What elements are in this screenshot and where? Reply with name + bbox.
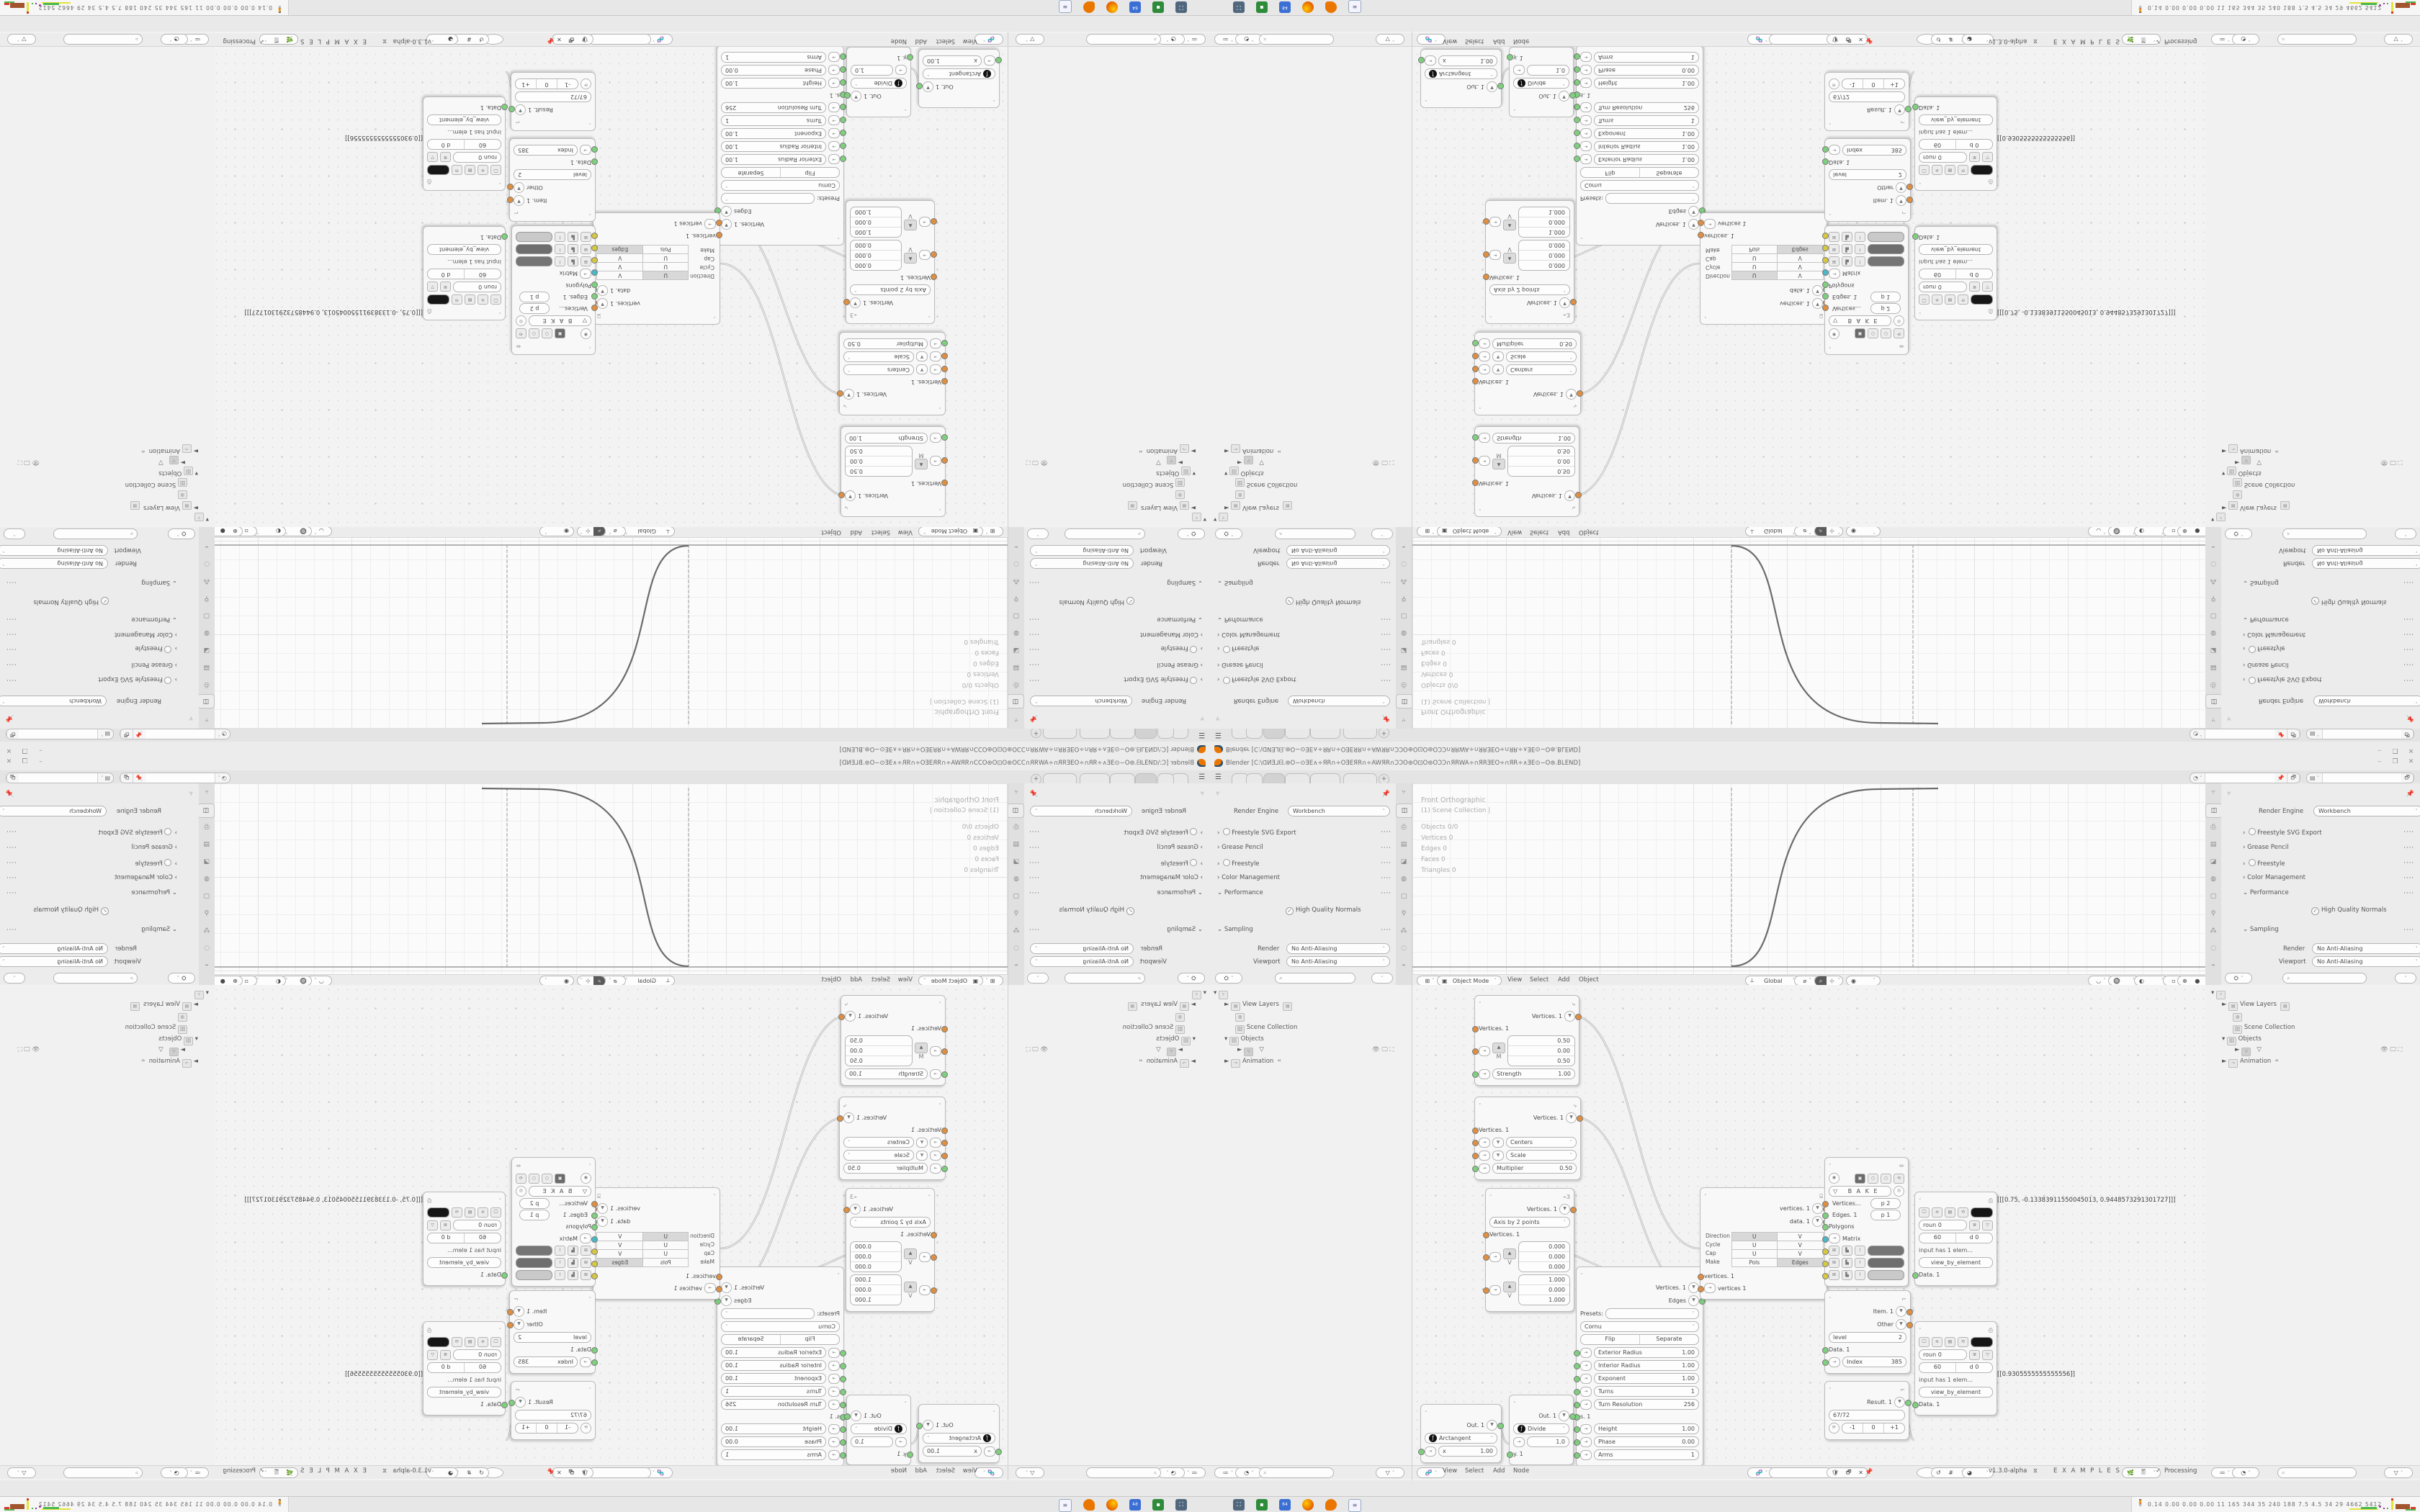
socket-options-icon[interactable]: ▼ (514, 182, 524, 193)
node-row-f3[interactable]: roun 0≣▽ (427, 282, 501, 292)
socket-g[interactable] (840, 1350, 846, 1356)
socket-o[interactable] (1483, 251, 1489, 258)
show-toggle-icon[interactable]: ◉ (581, 328, 591, 339)
collapse-icon[interactable]: ˅ (1479, 1103, 1482, 1109)
properties-tab-icon-4[interactable]: ◪ (1008, 855, 1024, 868)
node-field[interactable]: Arms1 (721, 52, 826, 63)
node-row-field[interactable]: level2 (514, 1332, 591, 1343)
node-row-btn[interactable]: view_by_element (1919, 114, 1993, 125)
node-row-btn[interactable]: view_by_element (1919, 1387, 1993, 1398)
menu-object[interactable]: Object (821, 976, 841, 984)
node-arctangent[interactable]: ˅Out. 1▼ƒArctangent˅⇥x1.00 (1420, 49, 1502, 108)
properties-tab-icon-6[interactable]: ▢ (1396, 890, 1412, 903)
node-field[interactable]: Turn Resolution256 (721, 102, 826, 113)
node-row-btn[interactable]: view_by_element (1919, 1257, 1993, 1268)
outliner-filter-type-dropdown[interactable]: ◔˅ (161, 34, 188, 45)
pin-icon[interactable]: 📌 (547, 1469, 555, 1476)
table-toggle-v[interactable]: V (1777, 254, 1824, 264)
socket-g[interactable] (995, 57, 1002, 63)
node-row-field[interactable]: ⇥x1.00 (1425, 1446, 1497, 1457)
socket-options-icon[interactable]: ▼ (843, 1112, 854, 1123)
socket-g[interactable] (840, 1439, 846, 1446)
panel-grease-pencil[interactable]: › Grease Pencil (1217, 661, 1263, 668)
view-layer-name-field[interactable] (2323, 729, 2401, 739)
node-row-dd[interactable]: ⇥▼Centers˅ (1479, 1137, 1577, 1148)
socket-g[interactable] (1574, 130, 1580, 136)
properties-filter-dropdown[interactable]: ⛭˅ (168, 528, 195, 539)
high-quality-normals-checkbox[interactable]: ✓High Quality Normals (34, 906, 109, 915)
copy-icon[interactable]: 🗗 (6, 729, 19, 739)
node-row-swatch[interactable]: ⊞▙⌇ (1829, 1246, 1904, 1256)
node-field[interactable]: Phase0.00 (1594, 1436, 1699, 1447)
node-field[interactable]: Interior Radius1.00 (1594, 1360, 1699, 1371)
taskbar-blender-icon[interactable] (1083, 1499, 1095, 1511)
table-toggle-edges[interactable]: Edges (1777, 1258, 1824, 1267)
properties-tab-icon-9[interactable]: ◌ (199, 942, 215, 955)
collapse-icon[interactable]: ˅ (1829, 1297, 1832, 1302)
swatch-option-icon[interactable]: ▙ (568, 1246, 578, 1256)
node-field[interactable]: x1.00 (1438, 1446, 1497, 1457)
outliner-scene-collection[interactable]: 🗄 Scene Collection (1235, 1024, 1297, 1034)
outliner-objects[interactable]: ▾ 🗄 Objects (1224, 1035, 1264, 1045)
node-row-field[interactable]: ⇥Exterior Radius1.00 (1580, 154, 1699, 165)
node-axis-by-2-points[interactable]: ˅⌁3Vertices. 1▼Axis by 2 points˅Vertices… (1485, 1188, 1574, 1312)
socket-o[interactable] (941, 480, 948, 486)
socket-o[interactable] (1575, 1014, 1582, 1020)
outliner-animation[interactable]: ► ⤳ Animation ⁴² (1224, 444, 1281, 454)
node-row-field[interactable]: ⇥Phase0.00 (1580, 1436, 1699, 1447)
outliner-view-layers[interactable]: ► ▤ View Layers ▤ (2222, 1001, 2290, 1011)
socket-g[interactable] (1507, 54, 1513, 60)
socket-options-icon[interactable]: ▼ (1688, 206, 1699, 217)
high-quality-normals-checkbox[interactable]: ✓High Quality Normals (34, 597, 109, 606)
node-editor[interactable]: [[[0.75, -0.13383911550045013, 0.9448573… (213, 985, 1008, 1480)
socket-y[interactable] (1822, 258, 1829, 264)
node-row-sicons[interactable]: 🖵≋▤⟲ (427, 1207, 501, 1218)
properties-tab-icon-10[interactable]: ⌁ (1396, 540, 1412, 553)
node-axis-by-2-points[interactable]: ˅⌁3Vertices. 1▼Axis by 2 points˅Vertices… (846, 200, 935, 324)
panel-grease-pencil[interactable]: › Grease Pencil (1157, 661, 1203, 668)
scene-browse-icon[interactable]: ◔˅ (2190, 729, 2205, 739)
outliner-world-icon[interactable]: ◍ (2233, 1012, 2242, 1022)
node-field[interactable]: 1.0 (1527, 1436, 1569, 1447)
stethoscope-option-icon[interactable]: ▤ (465, 1207, 475, 1218)
node-row-dd[interactable]: ƒDivide˅ (851, 1423, 907, 1434)
taskbar-floppy-64-icon[interactable]: 64 (1279, 1499, 1291, 1511)
node-dropdown[interactable]: ƒArctangent˅ (923, 1433, 995, 1444)
node-stethoscope-2[interactable]: ˅⎙🖵≋▤⟲roun 0≣▽60d 0input has 1 elem...vi… (423, 96, 506, 191)
properties-tab-icon-10[interactable]: ⌁ (1008, 959, 1024, 972)
node-field[interactable]: Phase0.00 (721, 65, 826, 76)
swatch-option-icon[interactable]: ⌇ (1855, 1246, 1865, 1256)
socket-options-icon[interactable]: ▼ (1812, 285, 1823, 296)
socket-o[interactable] (837, 390, 843, 397)
render-engine-dropdown[interactable]: Workbench˅ (0, 806, 107, 816)
socket-g[interactable] (1418, 1449, 1425, 1455)
outliner-scene-collection[interactable]: 🗄 Scene Collection (1123, 1024, 1185, 1034)
swatch-option-icon[interactable]: ▙ (1842, 232, 1852, 242)
outliner-restriction-icons[interactable]: 👁 🖵 ⛶ (2380, 459, 2402, 466)
socket-o[interactable] (941, 1048, 948, 1055)
socket-options-icon[interactable]: ▼ (1566, 389, 1577, 400)
socket-g[interactable] (995, 1449, 1002, 1455)
properties-tab-icon-2[interactable]: ⎙ (199, 821, 215, 834)
node-row-dd[interactable]: ⇥▼Scale˅ (843, 1150, 941, 1161)
tree-icons-group[interactable]: 🌿🖺˅ (2122, 34, 2161, 45)
collapse-icon[interactable]: ˅ (1479, 404, 1482, 410)
node-row-vec[interactable]: ⇥▲M0.500.000.50 (845, 1035, 941, 1066)
sampling-viewport-dropdown[interactable]: No Anti-Aliasing˅ (1030, 545, 1134, 556)
panel-freestyle[interactable]: › Freestyle (2243, 859, 2285, 868)
copy-icon[interactable]: 🗗 (2287, 729, 2300, 739)
scene-name-field[interactable] (2205, 729, 2274, 739)
node-row-field[interactable]: Edges. 1p 1 (1829, 1210, 1904, 1220)
properties-tab-icon-4[interactable]: ◪ (1396, 644, 1412, 657)
properties-tab-icon-9[interactable]: ◌ (199, 557, 215, 570)
collapse-icon[interactable]: ˅ (1489, 312, 1492, 318)
swatch-option-icon[interactable]: ⊞ (581, 256, 591, 266)
socket-g[interactable] (591, 1212, 598, 1219)
node-row-table[interactable]: DirectionUVCycleUVCapUVMakePolsEdges (1704, 1229, 1823, 1269)
sampling-render-dropdown[interactable]: No Anti-Aliasing˅ (1286, 943, 1390, 954)
socket-y[interactable] (1822, 1261, 1829, 1267)
socket-options-icon[interactable]: ▼ (721, 1282, 732, 1293)
socket-g[interactable] (907, 1452, 913, 1458)
socket-options-icon[interactable]: ▼ (1812, 298, 1823, 309)
node-field[interactable]: Vertices...p 2 (1829, 1199, 1904, 1208)
socket-o[interactable] (1906, 197, 1913, 203)
close-button[interactable]: ✕ (4, 758, 14, 765)
node-arctangent[interactable]: ˅Out. 1▼ƒArctangent˅⇥x1.00 (918, 49, 1000, 108)
add-workspace-button[interactable]: + (1031, 727, 1041, 738)
panel-grease-pencil[interactable]: › Grease Pencil (1217, 844, 1263, 851)
step-button[interactable]: -1 (1842, 79, 1863, 89)
socket-options-icon[interactable]: ▼ (923, 1420, 933, 1431)
socket-y[interactable] (591, 1248, 598, 1255)
node-dropdown[interactable]: Cornu˅ (721, 180, 840, 191)
vector-field[interactable]: 1.0000.0001.000 (1518, 207, 1570, 238)
node-field[interactable]: Phase0.00 (721, 1436, 826, 1447)
node-row-sicons[interactable]: 🖵≋▤⟲ (427, 1337, 501, 1347)
node-field[interactable]: Exterior Radius1.00 (1594, 154, 1699, 165)
socket-o[interactable] (507, 184, 514, 190)
menu-view[interactable]: View (1507, 528, 1522, 536)
socket-o[interactable] (941, 1026, 948, 1032)
snap-toggle[interactable]: ⌕⊹˅ (577, 526, 606, 536)
display-curve-icon[interactable]: ⟲ (516, 1174, 526, 1184)
node-row-table[interactable]: DirectionUVCycleUVCapUVMakePolsEdges (597, 243, 716, 283)
collapse-icon[interactable]: ˅ (1479, 1002, 1482, 1007)
panel-sampling[interactable]: ⌄ Sampling (1217, 579, 1253, 586)
properties-tab-icon-7[interactable]: ⚲ (199, 592, 215, 605)
outliner-world-icon[interactable]: ◍ (1235, 1012, 1245, 1022)
properties-tab-icon-7[interactable]: ⚲ (2205, 907, 2221, 920)
socket-o[interactable] (931, 251, 937, 258)
panel-sampling[interactable]: ⌄ Sampling (1217, 926, 1253, 933)
node-editor-type-dropdown[interactable]: 🧬˅ (974, 34, 1003, 45)
display-verts-icon[interactable]: ▣ (1855, 329, 1865, 339)
stethoscope-option-icon[interactable]: ≋ (1932, 165, 1942, 175)
node-field[interactable]: Exponent1.00 (1594, 1373, 1699, 1384)
node-row-dd[interactable]: ⇥▼Centers˅ (843, 364, 941, 375)
node-dropdown[interactable]: Scale˅ (843, 1150, 914, 1161)
collapse-icon[interactable]: ˅ (1513, 1401, 1516, 1407)
properties-tab-icon-9[interactable]: ◌ (2205, 557, 2221, 570)
socket-g[interactable] (1822, 293, 1829, 300)
taskbar-notepad-icon[interactable]: ≡ (1348, 0, 1361, 13)
rounding-field[interactable]: roun 0 (1919, 152, 1967, 163)
collapse-icon[interactable]: ˅ (1829, 1387, 1832, 1393)
view-layer-browse-icon[interactable]: ▤˅ (97, 729, 113, 739)
menu-view[interactable]: View (1443, 37, 1457, 45)
menu-add[interactable]: Add (851, 528, 862, 536)
outliner-restriction-icons[interactable]: 👁 🖵 ⛶ (1372, 459, 1394, 466)
node-row-field[interactable]: ⇥Height1.00 (721, 78, 840, 89)
socket-o[interactable] (1822, 1201, 1829, 1207)
step-button[interactable]: -1 (557, 1423, 578, 1433)
socket-g[interactable] (1912, 104, 1919, 110)
node-field[interactable]: Vertices...p 2 (516, 1199, 591, 1208)
socket-o[interactable] (1472, 1140, 1479, 1146)
panel-freestyle-svg-export[interactable]: › Freestyle SVG Export (98, 675, 177, 684)
node-row-scrub[interactable]: ⟳-10+1 (1829, 78, 1905, 89)
step-button[interactable]: -1 (557, 79, 578, 89)
node-row-dd[interactable]: ⇥▼Centers˅ (843, 1137, 941, 1148)
transform-orientation-dropdown[interactable]: ⟂Global˅ (620, 976, 675, 986)
properties-tab-icon-1[interactable]: ◫ (1396, 694, 1413, 708)
node-row-f3[interactable]: roun 0≣▽ (1919, 152, 1993, 163)
node-dropdown[interactable]: Centers˅ (1506, 364, 1577, 375)
collapse-icon[interactable]: ˅ (1704, 313, 1707, 319)
socket-o[interactable] (1472, 353, 1479, 359)
socket-g[interactable] (508, 1400, 515, 1406)
node-field[interactable]: Height1.00 (721, 1423, 826, 1434)
pin-icon[interactable]: 📌 (133, 773, 146, 783)
properties-tab-icon-10[interactable]: ⌁ (1008, 540, 1024, 553)
collapse-icon[interactable]: ˅ (1704, 1194, 1707, 1200)
table-toggle-v[interactable]: V (1777, 263, 1824, 272)
scene-selector[interactable]: ◔˅ 📌 🗗 (2190, 729, 2300, 739)
step-button[interactable]: -1 (1842, 1423, 1863, 1433)
workspace-tab-5[interactable] (1080, 728, 1110, 739)
color-swatch[interactable] (1868, 1258, 1904, 1268)
table-toggle-pols[interactable]: Pols (1731, 1258, 1778, 1267)
stethoscope-option-icon[interactable]: ≋ (478, 1207, 488, 1218)
collapse-icon[interactable]: ˅ (1919, 1198, 1922, 1204)
outliner-view-layers[interactable]: ► ▤ View Layers ▤ (1224, 1001, 1292, 1011)
properties-search-input[interactable]: ⌕ (1275, 528, 1355, 539)
taskbar-camera-app-icon[interactable]: ⛶ (1233, 1499, 1245, 1511)
collapse-icon[interactable]: ˅ (838, 1273, 841, 1279)
node-field[interactable]: Interior Radius1.00 (721, 1360, 826, 1371)
outliner-world-icon[interactable]: ◍ (1175, 1012, 1185, 1022)
swatch-option-icon[interactable]: ▙ (568, 1270, 578, 1280)
bake-button[interactable]: ▽B A K E (529, 1186, 591, 1197)
socket-y[interactable] (1822, 246, 1829, 252)
step-button[interactable]: 0 (1863, 1423, 1884, 1433)
node-field[interactable]: level2 (514, 169, 591, 180)
socket-options-icon[interactable]: ▼ (1894, 1397, 1905, 1408)
socket-options-icon[interactable]: ▼ (851, 1410, 861, 1421)
panel-color-management[interactable]: › Color Management (2243, 874, 2305, 881)
node-row-dd[interactable]: Cornu˅ (1580, 180, 1699, 191)
stethoscope-option-icon[interactable]: ⟲ (1958, 165, 1968, 175)
properties-tab-icon-1[interactable]: ◫ (197, 804, 215, 818)
display-verts-icon[interactable]: ▣ (1855, 1174, 1865, 1184)
panel-sampling[interactable]: ⌄ Sampling (141, 579, 177, 586)
menu-view[interactable]: View (963, 1467, 977, 1475)
node-scale[interactable]: ˅⤷Vertices. 1▼Vertices. 1⇥▼Centers˅⇥▼Sca… (839, 1097, 946, 1180)
stethoscope-option-icon[interactable]: ⟲ (452, 294, 462, 305)
node-spiral[interactable]: ˅Vertices. 1▼Edges▼Presets:˅Cornu˅FlipSe… (1576, 1266, 1703, 1467)
socket-g[interactable] (591, 293, 598, 300)
display-verts-icon[interactable]: ▣ (555, 1174, 565, 1184)
stethoscope-option-icon[interactable]: ⟲ (452, 1337, 462, 1347)
color-swatch[interactable] (516, 1246, 552, 1256)
node-row-field[interactable]: ⇥Exterior Radius1.00 (721, 1347, 840, 1358)
socket-g[interactable] (1574, 143, 1580, 149)
socket-g[interactable] (1574, 1389, 1580, 1395)
socket-o[interactable] (931, 1254, 937, 1261)
view-layer-browse-icon[interactable]: ▤˅ (2307, 729, 2323, 739)
show-toggle-icon[interactable]: ◉ (1829, 328, 1839, 339)
text-color-swatch[interactable] (1971, 294, 1993, 305)
panel-grease-pencil[interactable]: › Grease Pencil (2243, 844, 2289, 851)
node-noise-displace[interactable]: ˅⤷Vertices. 1▼Vertices. 1⇥▲M0.500.000.50… (1474, 426, 1579, 517)
view-by-element-button[interactable]: view_by_element (1919, 1257, 1993, 1268)
socket-options-icon[interactable]: ▼ (514, 1306, 524, 1317)
node-row-field[interactable]: ⇥Height1.00 (721, 1423, 840, 1434)
outliner-world-icon[interactable]: ◍ (178, 490, 187, 500)
node-row-field[interactable]: ⇥Phase0.00 (1580, 65, 1699, 76)
node-row-field[interactable]: ⇥Arms1 (1580, 52, 1699, 63)
socket-o[interactable] (843, 299, 850, 305)
node-row-f3[interactable]: roun 0≣▽ (1919, 1349, 1993, 1360)
outliner-animation[interactable]: ► ⤳ Animation ⁴² (1139, 444, 1196, 454)
socket-g[interactable] (916, 1423, 923, 1429)
scene-selector[interactable]: ◔˅ 📌 🗗 (120, 773, 230, 783)
socket-y[interactable] (591, 1273, 598, 1279)
properties-tab-icon-5[interactable]: ◍ (1396, 626, 1412, 639)
properties-tab-icon-4[interactable]: ◪ (2205, 855, 2221, 868)
taskbar-firefox-icon[interactable] (1302, 1499, 1314, 1511)
view-layer-browse-icon[interactable]: ▤˅ (2307, 773, 2323, 783)
taskbar-floppy-64-icon[interactable]: 64 (1279, 1, 1291, 13)
socket-g[interactable] (840, 1452, 846, 1459)
swatch-option-icon[interactable]: ⊞ (581, 244, 591, 254)
node-row-swatch[interactable]: ⊞▙⌇ (516, 1270, 591, 1280)
panel-freestyle[interactable]: › Freestyle (2243, 644, 2285, 653)
socket-o[interactable] (843, 1207, 850, 1213)
rounding-field[interactable]: roun 0 (453, 282, 501, 292)
collapse-icon[interactable]: ˅ (993, 1410, 996, 1416)
node-row-field[interactable]: ⇥1.0 (851, 65, 907, 76)
node-row-dd[interactable]: ⇥▼Centers˅ (1479, 364, 1577, 375)
node-field[interactable]: Edges. 1p 1 (516, 1210, 591, 1220)
swatch-option-icon[interactable]: ▙ (1842, 256, 1852, 266)
pin-icon[interactable]: 📌 (6, 714, 14, 721)
socket-g[interactable] (916, 83, 923, 89)
text-color-swatch[interactable] (427, 1337, 449, 1347)
menu-select[interactable]: Select (871, 528, 890, 536)
socket-options-icon[interactable]: ▼ (597, 285, 608, 296)
properties-tab-icon-9[interactable]: ◌ (1396, 557, 1412, 570)
properties-tab-icon-0[interactable]: ⑂ (1396, 713, 1412, 726)
node-row-dd[interactable]: ƒArctangent˅ (923, 1433, 995, 1444)
node-row-field[interactable]: ⇥Interior Radius1.00 (721, 141, 840, 152)
processing-check-icon[interactable]: ✓ (2156, 1467, 2161, 1475)
node-editor[interactable]: [[[0.75, -0.13383911550045013, 0.9448573… (1412, 985, 2207, 1480)
menu-select[interactable]: Select (1530, 528, 1549, 536)
width-field[interactable]: 60d 0 (427, 269, 501, 279)
width-field[interactable]: 60d 0 (427, 1233, 501, 1243)
menu-node[interactable]: Node (891, 1467, 907, 1475)
node-field[interactable]: Edges. 1p 1 (1829, 292, 1904, 302)
node-row-f3[interactable]: roun 0≣▽ (427, 152, 501, 163)
pin-icon[interactable]: 📌 (1382, 791, 1390, 798)
node-row-bake[interactable]: ▽B A K E◎ (1829, 315, 1904, 326)
display-edges-icon[interactable]: ○ (1868, 329, 1878, 339)
panel-color-management[interactable]: › Color Management (1217, 631, 1280, 638)
node-stethoscope-2[interactable]: ˅⎙🖵≋▤⟲roun 0≣▽60d 0input has 1 elem...vi… (1914, 96, 1997, 191)
copy-icon[interactable]: 🗗 (2287, 773, 2300, 783)
node-row-vec[interactable]: ⇥▲M0.500.000.50 (1479, 1035, 1575, 1066)
properties-search-input[interactable]: ⌕ (1065, 528, 1145, 539)
socket-o[interactable] (941, 1153, 948, 1159)
properties-tab-icon-8[interactable]: ⁂ (1396, 924, 1412, 937)
socket-g[interactable] (501, 1272, 508, 1279)
socket-g[interactable] (501, 104, 508, 110)
presets-dropdown[interactable]: ˅ (721, 193, 815, 204)
node-row-pre[interactable]: Presets:˅ (721, 1308, 840, 1319)
taskbar-firefox-icon[interactable] (1106, 1, 1118, 13)
outliner-animation[interactable]: ► ⤳ Animation ⁴² (141, 444, 198, 454)
outliner-objects-filter[interactable]: ► ▽ ▽ (1237, 1046, 1264, 1056)
properties-filter-dropdown[interactable]: ⛭˅ (1178, 528, 1205, 539)
properties-tab-icon-6[interactable]: ▢ (1008, 890, 1024, 903)
menu-add[interactable]: Add (1558, 976, 1569, 984)
taskbar-notepad-icon[interactable]: ≡ (1059, 1499, 1072, 1512)
node-row-field[interactable]: level2 (514, 169, 591, 180)
socket-o[interactable] (941, 457, 948, 464)
socket-o[interactable] (1570, 299, 1577, 305)
node-row-vec[interactable]: ⇥▲V0.0000.0000.000 (850, 1241, 931, 1272)
socket-o[interactable] (1472, 1128, 1479, 1134)
sampling-render-dropdown[interactable]: No Anti-Aliasing˅ (0, 558, 108, 569)
node-row-field[interactable]: ⇥Phase0.00 (721, 1436, 840, 1447)
workspace-tab-2[interactable] (1157, 728, 1174, 739)
properties-tab-icon-6[interactable]: ▢ (2205, 890, 2221, 903)
panel-grease-pencil[interactable]: › Grease Pencil (1157, 844, 1203, 851)
node-field[interactable]: 67/72 (1829, 91, 1905, 102)
socket-o[interactable] (1570, 1207, 1577, 1213)
display-edges-icon[interactable]: ○ (542, 1174, 552, 1184)
socket-g[interactable] (1822, 282, 1829, 288)
taskbar-floppy-64-icon[interactable]: 64 (1129, 1, 1141, 13)
stethoscope-option-icon[interactable]: ≋ (478, 165, 488, 175)
node-row-dd[interactable]: ƒDivide˅ (851, 78, 907, 89)
menu-node[interactable]: Node (1513, 37, 1529, 45)
node-viewer-draw[interactable]: ˅✏◉▣○○⟲▽B A K E◎Vertices...p 2Edges. 1p … (1824, 1157, 1909, 1287)
outliner-objects[interactable]: ▾ 🗄 Objects (2222, 1035, 2262, 1045)
outliner-restriction-icons[interactable]: 👁 🖵 ⛶ (1026, 459, 1048, 466)
menu-object[interactable]: Object (1579, 976, 1599, 984)
properties-tab-icon-10[interactable]: ⌁ (1396, 959, 1412, 972)
socket-o[interactable] (716, 1286, 722, 1292)
color-swatch[interactable] (516, 232, 552, 242)
collapse-icon[interactable]: ˅ (939, 1002, 942, 1007)
menu-hamburger-icon[interactable]: ☰ (1198, 773, 1205, 781)
